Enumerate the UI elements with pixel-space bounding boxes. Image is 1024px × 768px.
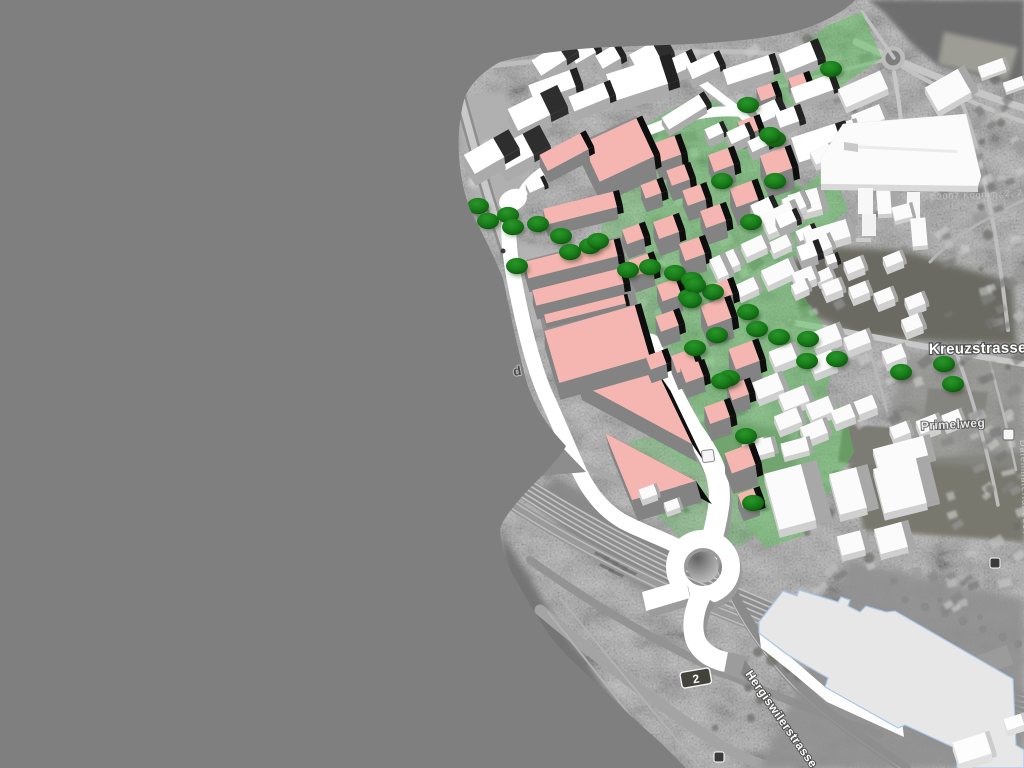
- svg-text:Kreuzstrasse: Kreuzstrasse: [929, 339, 1024, 358]
